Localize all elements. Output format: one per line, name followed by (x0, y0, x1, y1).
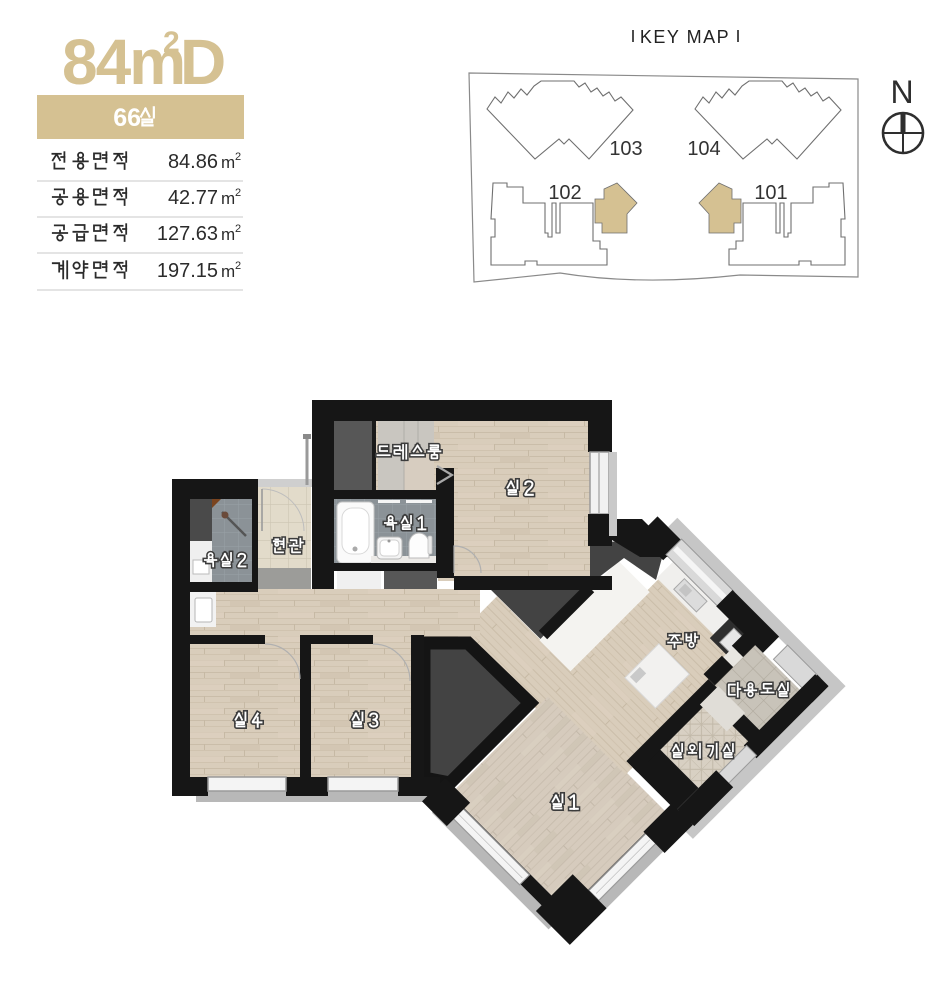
svg-text:KEY MAP: KEY MAP (640, 27, 730, 47)
svg-text:84.86: 84.86 (168, 151, 218, 173)
svg-text:2: 2 (235, 260, 241, 272)
svg-text:101: 101 (754, 182, 787, 204)
svg-text:102: 102 (548, 182, 581, 204)
svg-text:m: m (221, 189, 235, 208)
svg-text:103: 103 (609, 138, 642, 160)
svg-text:2: 2 (235, 151, 241, 163)
svg-text:42.77: 42.77 (168, 187, 218, 209)
svg-text:104: 104 (687, 138, 720, 160)
svg-text:m: m (221, 262, 235, 281)
svg-text:66: 66 (113, 104, 141, 132)
svg-text:m: m (221, 225, 235, 244)
svg-text:D: D (180, 26, 226, 98)
svg-text:N: N (890, 74, 913, 110)
svg-text:m: m (221, 153, 235, 172)
svg-text:2: 2 (235, 223, 241, 235)
svg-text:2: 2 (235, 187, 241, 199)
svg-text:2: 2 (163, 26, 180, 59)
svg-text:197.15: 197.15 (157, 260, 218, 282)
svg-text:127.63: 127.63 (157, 223, 218, 245)
